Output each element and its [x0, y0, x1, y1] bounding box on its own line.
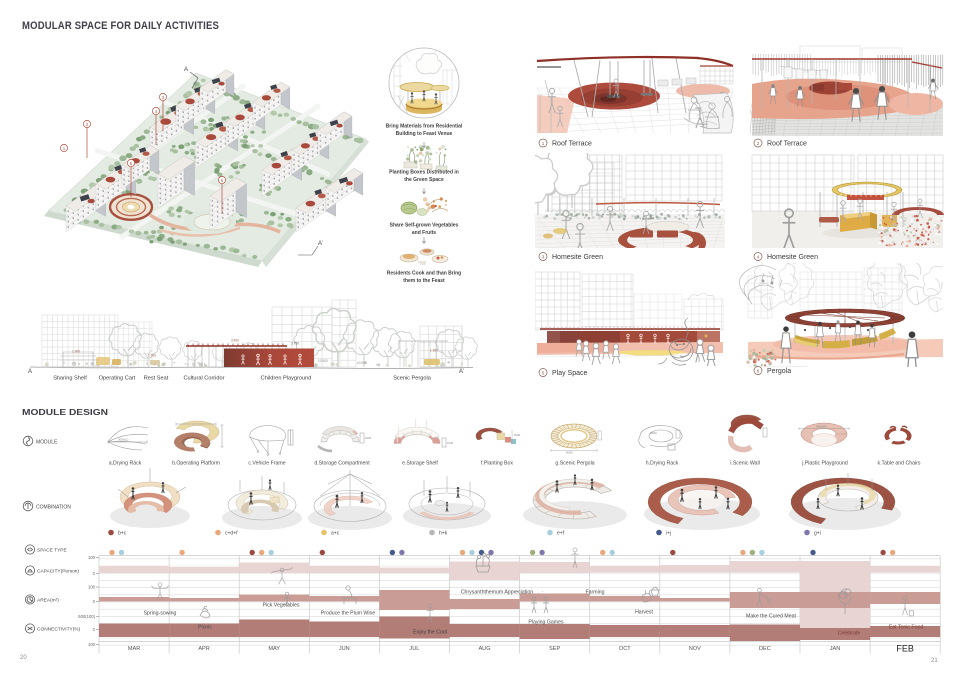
svg-text:Operating Cart: Operating Cart [99, 376, 136, 382]
svg-text:3 400: 3 400 [231, 339, 239, 343]
svg-text:Roof Terrace: Roof Terrace [767, 140, 807, 147]
svg-text:Harvest: Harvest [635, 610, 653, 616]
svg-text:a.Drying Rack: a.Drying Rack [109, 461, 142, 467]
svg-text:MODULAR SPACE FOR DAILY ACT: MODULAR SPACE FOR DAILY ACTIVITIES [22, 20, 219, 32]
svg-text:k.Table and Chairs: k.Table and Chairs [878, 461, 921, 467]
svg-text:b.Operating Platform: b.Operating Platform [172, 461, 220, 467]
svg-text:Building to Feast Venue: Building to Feast Venue [396, 131, 453, 137]
svg-text:3 750: 3 750 [291, 342, 299, 346]
svg-text:A: A [184, 67, 188, 73]
svg-text:6: 6 [757, 369, 760, 374]
svg-text:d.Storage Compartment: d.Storage Compartment [314, 461, 370, 467]
svg-text:Make the Cured Meat: Make the Cured Meat [746, 614, 796, 620]
svg-text:10 500: 10 500 [318, 359, 328, 363]
svg-text:j.Plastic Playground: j.Plastic Playground [801, 461, 848, 467]
svg-text:Scenic Pergola: Scenic Pergola [393, 376, 432, 382]
svg-text:1: 1 [542, 141, 545, 146]
svg-text:Farming: Farming [585, 590, 604, 596]
svg-text:2: 2 [757, 141, 760, 146]
svg-text:Pick Vegetables: Pick Vegetables [263, 603, 300, 609]
svg-text:Residents Cook and than Bring: Residents Cook and than Bring [387, 271, 461, 277]
svg-text:c.Vehicle Frame: c.Vehicle Frame [248, 461, 285, 467]
svg-text:i+j: i+j [666, 531, 671, 537]
svg-text:21: 21 [931, 658, 938, 664]
svg-text:e.Storage Shelf: e.Storage Shelf [402, 461, 438, 467]
svg-text:APR: APR [198, 646, 210, 652]
svg-text:b+c: b+c [118, 531, 127, 537]
svg-text:Rest Seat: Rest Seat [144, 376, 169, 382]
svg-text:Chrysanththemum Appreciation: Chrysanththemum Appreciation [461, 590, 533, 596]
svg-text:h.Drying Rack: h.Drying Rack [646, 461, 679, 467]
svg-text:Enjoy the Cool: Enjoy the Cool [413, 630, 447, 636]
svg-text:JAN: JAN [830, 646, 841, 652]
svg-text:20: 20 [20, 655, 27, 661]
svg-text:OCT: OCT [619, 646, 631, 652]
svg-text:A: A [28, 369, 32, 375]
svg-text:i.Scenic Wall: i.Scenic Wall [730, 461, 760, 467]
svg-text:SEP: SEP [549, 646, 560, 652]
svg-text:g.Scenic Pergola: g.Scenic Pergola [555, 461, 594, 467]
svg-text:3000(L): 3000(L) [118, 438, 128, 442]
svg-text:1 700: 1 700 [148, 354, 156, 358]
svg-text:NOV: NOV [689, 646, 701, 652]
svg-text:Bring Materials from Residenti: Bring Materials from Residential [386, 124, 463, 130]
svg-text:5: 5 [542, 371, 545, 376]
svg-text:the Green Space: the Green Space [404, 177, 444, 183]
svg-text:and Fruits: and Fruits [412, 230, 436, 236]
svg-text:c+d+f: c+d+f [225, 531, 238, 537]
svg-text:Children Playground: Children Playground [261, 376, 312, 382]
svg-text:COMBINATION: COMBINATION [36, 505, 71, 511]
svg-text:MODULE: MODULE [36, 440, 58, 446]
svg-text:1 300: 1 300 [72, 350, 80, 354]
svg-text:1500: 1500 [514, 433, 521, 437]
svg-text:CAPACITY(Person): CAPACITY(Person) [37, 569, 79, 575]
svg-text:3: 3 [542, 255, 545, 260]
svg-text:AREA(m²): AREA(m²) [37, 598, 59, 604]
svg-text:DEC: DEC [759, 646, 771, 652]
svg-text:Spring-sowing: Spring-sowing [144, 611, 177, 617]
svg-text:Eat Tonic Food: Eat Tonic Food [889, 625, 924, 631]
svg-text:Share Self-grown Vegetables: Share Self-grown Vegetables [390, 223, 459, 229]
svg-text:2000: 2000 [650, 431, 657, 435]
svg-text:Sharing Shelf: Sharing Shelf [53, 376, 87, 382]
svg-text:FEB: FEB [896, 644, 914, 654]
svg-text:A’: A’ [318, 241, 323, 247]
svg-text:h+k: h+k [439, 531, 448, 537]
svg-text:100: 100 [88, 555, 96, 560]
svg-text:Homesite Green: Homesite Green [552, 254, 603, 261]
svg-text:JUN: JUN [339, 646, 350, 652]
svg-text:Playing Games: Playing Games [528, 620, 564, 626]
svg-text:±0 000: ±0 000 [357, 361, 367, 365]
svg-text:A’: A’ [459, 369, 464, 375]
svg-text:4: 4 [757, 255, 760, 260]
svg-text:1500: 1500 [365, 436, 372, 440]
svg-text:MODULE DESIGN: MODULE DESIGN [22, 407, 108, 417]
svg-text:g+i: g+i [814, 531, 821, 537]
svg-text:Play Space: Play Space [552, 370, 588, 377]
svg-text:a+c: a+c [331, 531, 340, 537]
svg-text:Produce the Plum Wine: Produce the Plum Wine [321, 611, 376, 617]
svg-text:Homesite Green: Homesite Green [767, 254, 818, 261]
svg-text:100: 100 [88, 585, 96, 590]
svg-text:MAR: MAR [128, 646, 140, 652]
svg-text:1500: 1500 [447, 441, 454, 445]
svg-text:SPACE TYPE: SPACE TYPE [37, 548, 67, 554]
svg-text:Cultural Corridor: Cultural Corridor [183, 376, 224, 382]
svg-text:Pergola: Pergola [767, 368, 791, 375]
svg-text:500(100): 500(100) [78, 614, 95, 619]
svg-text:f.Planting Box: f.Planting Box [481, 461, 513, 467]
svg-text:CONNECTIVITY(%): CONNECTIVITY(%) [37, 627, 81, 633]
svg-text:100: 100 [88, 642, 96, 647]
svg-text:Picnic: Picnic [198, 625, 212, 631]
svg-text:e+f: e+f [557, 531, 565, 537]
svg-text:2800(R): 2800(R) [816, 425, 827, 429]
svg-text:Celebrate: Celebrate [838, 631, 861, 637]
svg-text:JUL: JUL [409, 646, 419, 652]
svg-text:6000: 6000 [566, 451, 573, 455]
svg-text:AUG: AUG [478, 646, 490, 652]
svg-text:1 300: 1 300 [430, 349, 438, 353]
svg-text:MAY: MAY [268, 646, 280, 652]
svg-text:Roof Terrace: Roof Terrace [552, 140, 592, 147]
svg-text:them to the Feast: them to the Feast [403, 278, 445, 284]
svg-text:Planting Boxes Distributed in: Planting Boxes Distributed in [389, 170, 459, 176]
